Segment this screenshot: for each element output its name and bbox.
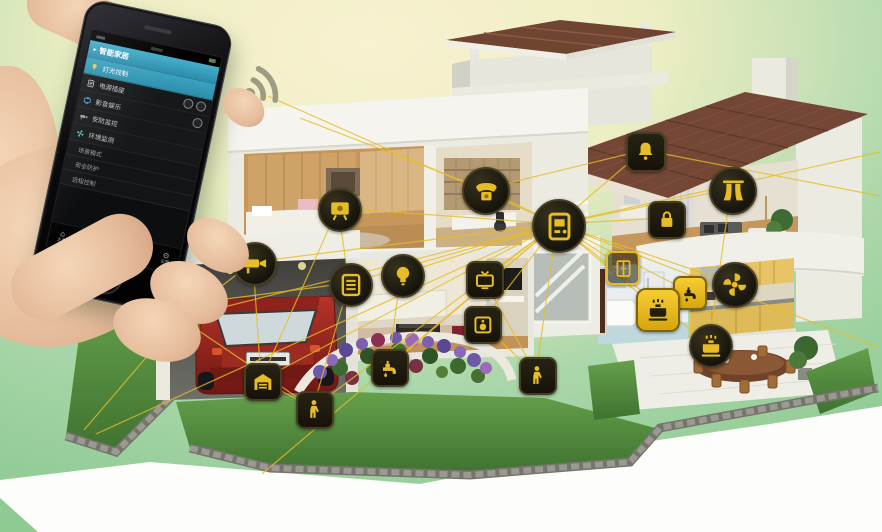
door-lock-icon[interactable] bbox=[648, 201, 686, 239]
earpiece bbox=[144, 25, 172, 35]
camera-icon bbox=[79, 111, 90, 122]
section-label: 安全防护 bbox=[74, 159, 99, 173]
garden-sprinkler-icon[interactable] bbox=[519, 357, 557, 395]
motion-sensor-icon[interactable] bbox=[296, 391, 334, 429]
grid-icon bbox=[86, 78, 97, 89]
alarm-bell-icon[interactable] bbox=[626, 132, 666, 172]
curtain-control-icon[interactable] bbox=[709, 167, 757, 215]
bedroom-monitor-icon[interactable] bbox=[318, 188, 362, 232]
battery-icon bbox=[208, 58, 216, 63]
stove-monitor-icon[interactable] bbox=[689, 324, 733, 368]
notification-icon bbox=[151, 46, 163, 51]
control-hub-icon[interactable] bbox=[532, 199, 586, 253]
garage-door-icon[interactable] bbox=[244, 363, 282, 401]
front-camera bbox=[140, 15, 146, 21]
section-label: 远程控制 bbox=[71, 174, 96, 188]
exhaust-fan-icon[interactable] bbox=[712, 262, 758, 308]
gas-stove-icon[interactable] bbox=[636, 288, 680, 332]
smart-home-promo-image: ▸ 智能家居 灯光控制电源插座影音娱乐安防监控环境监测场景模式安全防护远程控制 … bbox=[0, 0, 882, 532]
tv-icon bbox=[82, 94, 93, 105]
fan-icon bbox=[75, 128, 86, 139]
study-phone-icon[interactable] bbox=[462, 167, 510, 215]
switch-a-button[interactable] bbox=[192, 117, 204, 129]
switch-a-button[interactable] bbox=[182, 98, 194, 110]
tv-control-icon[interactable] bbox=[466, 261, 504, 299]
signal-icon bbox=[96, 35, 105, 40]
section-label: 场景模式 bbox=[78, 145, 103, 159]
irrigation-icon[interactable] bbox=[371, 349, 409, 387]
bulb-icon bbox=[89, 61, 100, 72]
header-marker-icon: ▸ bbox=[93, 46, 97, 53]
light-bulb-icon[interactable] bbox=[381, 254, 425, 298]
switch-b-button[interactable] bbox=[195, 101, 207, 113]
door-sensor-icon[interactable] bbox=[606, 251, 640, 285]
switch-panel-icon[interactable] bbox=[329, 263, 373, 307]
media-panel-icon[interactable] bbox=[464, 306, 502, 344]
